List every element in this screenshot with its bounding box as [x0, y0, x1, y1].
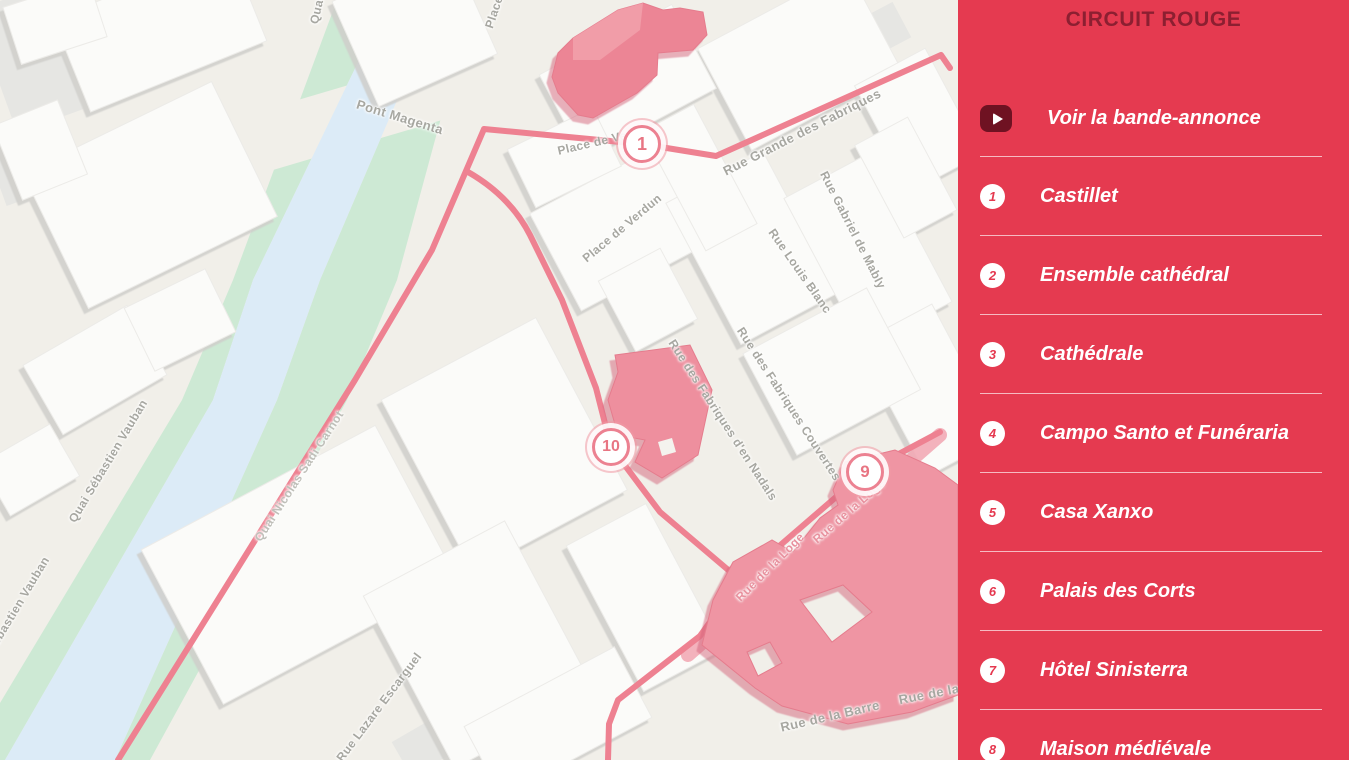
sidebar-item-label[interactable]: Cathédrale — [1040, 343, 1143, 366]
map-canvas — [0, 0, 958, 760]
map-marker-1[interactable]: 1 — [623, 125, 661, 163]
sidebar-item-label[interactable]: Maison médiévale — [1040, 738, 1211, 760]
marker-number: 1 — [637, 134, 647, 155]
marker-number: 9 — [860, 462, 869, 482]
item-number-badge: 8 — [980, 737, 1005, 760]
play-icon — [993, 113, 1003, 125]
page: Pont Magenta Quai Place Place de Ve Plac… — [0, 0, 1349, 760]
sidebar-item-maison-medievale[interactable]: 8 Maison médiévale — [958, 710, 1349, 760]
sidebar-item-ensemble-cathedral[interactable]: 2 Ensemble cathédral — [958, 236, 1349, 315]
sidebar-item-label[interactable]: Campo Santo et Funéraria — [1040, 422, 1289, 445]
circuit-sidebar: CIRCUIT ROUGE Voir la bande-annonce 1 Ca… — [958, 0, 1349, 760]
sidebar-item-casa-xanxo[interactable]: 5 Casa Xanxo — [958, 473, 1349, 552]
sidebar-item-castillet[interactable]: 1 Castillet — [958, 157, 1349, 236]
sidebar-item-cathedrale[interactable]: 3 Cathédrale — [958, 315, 1349, 394]
item-number-badge: 2 — [980, 263, 1005, 288]
sidebar-item-label[interactable]: Palais des Corts — [1040, 580, 1196, 603]
play-button[interactable] — [980, 105, 1012, 132]
item-number-badge: 3 — [980, 342, 1005, 367]
item-number-badge: 6 — [980, 579, 1005, 604]
sidebar-item-hotel-sinisterra[interactable]: 7 Hôtel Sinisterra — [958, 631, 1349, 710]
sidebar-item-label[interactable]: Hôtel Sinisterra — [1040, 659, 1188, 682]
item-number-badge: 5 — [980, 500, 1005, 525]
trailer-label[interactable]: Voir la bande-annonce — [1047, 107, 1261, 130]
map-marker-9[interactable]: 9 — [846, 453, 884, 491]
map-marker-10[interactable]: 10 — [592, 428, 630, 466]
sidebar-title: CIRCUIT ROUGE — [958, 0, 1349, 80]
trailer-row[interactable]: Voir la bande-annonce — [958, 80, 1349, 157]
circuit-map[interactable]: Pont Magenta Quai Place Place de Ve Plac… — [0, 0, 958, 760]
sidebar-item-label[interactable]: Casa Xanxo — [1040, 501, 1153, 524]
sidebar-item-campo-santo[interactable]: 4 Campo Santo et Funéraria — [958, 394, 1349, 473]
item-number-badge: 4 — [980, 421, 1005, 446]
item-number-badge: 1 — [980, 184, 1005, 209]
sidebar-item-label[interactable]: Castillet — [1040, 185, 1118, 208]
sidebar-item-label[interactable]: Ensemble cathédral — [1040, 264, 1229, 287]
sidebar-item-palais-des-corts[interactable]: 6 Palais des Corts — [958, 552, 1349, 631]
item-number-badge: 7 — [980, 658, 1005, 683]
marker-number: 10 — [602, 438, 620, 456]
